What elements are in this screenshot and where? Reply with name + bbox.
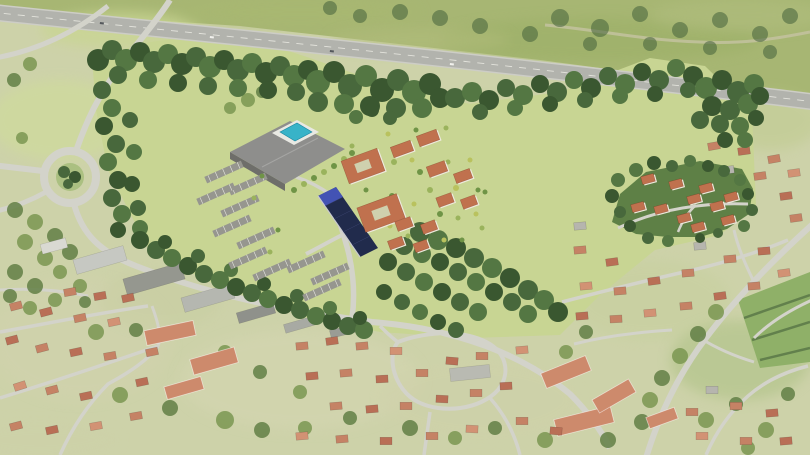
town-house — [606, 257, 619, 266]
render-tree — [482, 258, 502, 278]
bush — [427, 187, 433, 193]
town-house — [614, 287, 627, 296]
bush — [453, 185, 459, 191]
render-tree — [467, 273, 485, 291]
photo-tree — [7, 73, 21, 87]
photo-tree — [3, 289, 17, 303]
photo-tree — [600, 432, 616, 448]
town-house — [748, 282, 761, 291]
town-house — [780, 191, 793, 200]
photo-tree — [129, 323, 143, 337]
town-house — [724, 255, 737, 264]
bush — [468, 158, 473, 163]
photo-tree — [583, 37, 597, 51]
bush — [410, 158, 415, 163]
render-tree — [662, 235, 674, 247]
town-house — [356, 342, 369, 351]
town-house — [686, 408, 698, 416]
render-tree — [507, 100, 523, 116]
bush — [483, 190, 488, 195]
render-tree — [287, 83, 305, 101]
photo-tree — [432, 10, 448, 26]
town-house — [446, 357, 459, 366]
render-tree — [633, 63, 651, 81]
render-tree — [199, 77, 217, 95]
town-house — [296, 432, 309, 441]
render-tree — [565, 71, 583, 89]
render-tree — [746, 204, 758, 216]
render-tree — [737, 132, 753, 148]
town-house — [426, 432, 438, 440]
photo-tree — [112, 387, 128, 403]
bush — [456, 216, 461, 221]
town-house — [306, 372, 319, 381]
photo-tree — [522, 26, 538, 42]
render-tree — [95, 117, 113, 135]
render-tree — [497, 79, 515, 97]
render-tree — [548, 302, 568, 322]
render-tree — [485, 283, 503, 301]
photo-tree — [48, 293, 62, 307]
town-house — [296, 342, 309, 351]
render-tree — [379, 253, 397, 271]
render-tree — [629, 163, 643, 177]
render-tree — [605, 189, 619, 203]
bush — [321, 169, 327, 175]
render-tree — [738, 220, 750, 232]
photo-tree — [698, 412, 714, 428]
render-tree — [290, 289, 304, 303]
bush — [349, 150, 355, 156]
render-tree — [718, 165, 730, 177]
photo-tree — [402, 420, 418, 436]
render-tree — [624, 220, 636, 232]
town-house — [788, 168, 801, 177]
bush — [444, 126, 449, 131]
town-house — [516, 417, 528, 425]
town-house — [516, 346, 529, 355]
render-tree — [139, 71, 157, 89]
render-tree — [431, 253, 449, 271]
photo-tree — [293, 385, 307, 399]
photo-tree — [703, 41, 717, 55]
render-tree — [519, 305, 537, 323]
photo-tree — [17, 234, 33, 250]
render-tree — [158, 235, 172, 249]
bush — [301, 181, 307, 187]
town-house — [680, 302, 693, 311]
bush — [476, 188, 481, 193]
bush — [417, 169, 423, 175]
bush — [406, 234, 411, 239]
render-tree — [412, 304, 428, 320]
photo-tree — [672, 348, 688, 364]
bush — [252, 196, 257, 201]
photo-tree — [559, 345, 573, 359]
town-house — [550, 427, 563, 436]
photo-tree — [472, 18, 488, 34]
town-house — [730, 402, 742, 410]
photo-tree — [16, 132, 28, 144]
photo-tree — [53, 265, 67, 279]
render-tree — [323, 301, 337, 315]
photo-tree — [643, 37, 657, 51]
photo-tree — [88, 324, 104, 340]
render-tree — [445, 88, 465, 108]
town-house — [758, 247, 771, 256]
photo-tree — [7, 202, 23, 218]
town-house — [470, 389, 482, 397]
render-tree — [307, 307, 325, 325]
render-tree — [191, 249, 205, 263]
render-tree — [131, 231, 149, 249]
bush — [350, 144, 355, 149]
bush — [414, 128, 419, 133]
render-tree — [691, 111, 709, 129]
render-tree — [99, 153, 117, 171]
town-house — [706, 386, 718, 394]
photo-tree — [654, 370, 670, 386]
photo-tree — [253, 365, 267, 379]
render-tree — [449, 263, 467, 281]
render-tree — [464, 248, 484, 268]
render-tree — [308, 92, 328, 112]
town-house — [780, 437, 793, 446]
town-house — [466, 425, 478, 433]
render-tree — [713, 228, 723, 238]
render-tree — [376, 284, 392, 300]
town-house — [694, 242, 707, 251]
town-house — [500, 382, 512, 390]
photo-tree — [323, 1, 337, 15]
town-house — [340, 369, 353, 378]
render-tree — [577, 92, 593, 108]
render-tree — [113, 205, 131, 223]
render-tree — [349, 110, 363, 124]
photo-tree — [708, 304, 724, 320]
render-tree — [503, 293, 521, 311]
town-house — [330, 402, 343, 411]
render-tree — [531, 75, 549, 93]
bush — [260, 174, 265, 179]
photo-tree — [224, 102, 236, 114]
photo-tree — [712, 12, 728, 28]
render-tree — [109, 171, 127, 189]
render-tree — [109, 66, 127, 84]
render-tree — [430, 314, 446, 330]
viewport — [0, 0, 810, 455]
photo-tree — [392, 4, 408, 20]
town-house — [574, 246, 587, 255]
bush — [480, 226, 485, 231]
render-tree — [229, 79, 247, 97]
town-house — [576, 312, 589, 321]
bush — [460, 238, 465, 243]
photo-tree — [27, 214, 43, 230]
render-tree — [695, 233, 705, 243]
render-tree — [169, 74, 187, 92]
render-tree — [124, 176, 140, 192]
bush — [437, 211, 443, 217]
render-tree — [433, 283, 451, 301]
aerial-render-image — [0, 0, 810, 455]
town-house — [696, 432, 708, 440]
photo-tree — [551, 9, 569, 27]
town-house — [380, 437, 392, 445]
render-tree — [448, 322, 464, 338]
town-house — [766, 409, 779, 418]
bush — [276, 228, 281, 233]
town-house — [574, 222, 587, 231]
town-house — [644, 309, 657, 318]
town-house — [376, 375, 388, 383]
roundabout-tree — [58, 166, 70, 178]
render-tree — [614, 206, 626, 218]
town-house — [336, 435, 349, 444]
render-tree — [742, 188, 754, 200]
town-house — [714, 291, 727, 300]
render-tree — [383, 111, 397, 125]
render-tree — [462, 82, 482, 102]
render-tree — [195, 265, 213, 283]
render-tree — [451, 293, 469, 311]
roundabout-tree — [63, 179, 73, 189]
photo-tree — [763, 45, 777, 59]
photo-tree — [216, 411, 234, 429]
bush — [331, 163, 337, 169]
photo-tree — [488, 421, 502, 435]
town-house — [754, 171, 767, 180]
render-tree — [122, 112, 138, 128]
render-tree — [500, 268, 520, 288]
render-tree — [259, 290, 277, 308]
photo-tree — [353, 9, 367, 23]
render-tree — [472, 104, 488, 120]
town-house — [390, 347, 402, 355]
town-house — [436, 395, 448, 403]
town-house — [476, 352, 488, 360]
town-house — [416, 369, 428, 377]
photo-tree — [690, 326, 706, 342]
bush — [268, 250, 273, 255]
town-house — [682, 269, 695, 278]
town-house — [610, 315, 622, 323]
render-tree — [717, 132, 733, 148]
render-tree — [751, 87, 769, 105]
photo-tree — [579, 325, 593, 339]
photo-tree — [632, 6, 648, 22]
photo-tree — [23, 301, 37, 315]
render-tree — [365, 103, 379, 117]
photo-tree — [79, 296, 91, 308]
render-tree — [611, 173, 625, 187]
bush — [291, 187, 297, 193]
render-tree — [647, 86, 663, 102]
render-tree — [93, 81, 111, 99]
render-tree — [667, 59, 685, 77]
render-tree — [415, 273, 433, 291]
render-tree — [259, 81, 277, 99]
bush — [391, 159, 397, 165]
render-tree — [612, 88, 628, 104]
town-house — [778, 268, 791, 277]
photo-tree — [343, 411, 357, 425]
photo-tree — [672, 22, 688, 38]
town-house — [400, 402, 412, 410]
town-house — [366, 405, 379, 414]
render-tree — [748, 110, 764, 126]
town-house — [580, 282, 593, 291]
render-tree — [599, 67, 617, 85]
photo-tree — [758, 422, 774, 438]
photo-tree — [23, 57, 37, 71]
bush — [474, 212, 479, 217]
render-tree — [647, 156, 661, 170]
render-tree — [103, 99, 121, 117]
render-tree — [130, 200, 146, 216]
render-tree — [734, 174, 746, 186]
render-tree — [163, 249, 181, 267]
photo-tree — [782, 8, 798, 24]
bush — [386, 132, 391, 137]
render-tree — [107, 135, 125, 153]
town-house — [648, 276, 661, 285]
render-tree — [642, 232, 654, 244]
render-tree — [542, 96, 558, 112]
render-tree — [103, 189, 121, 207]
render-tree — [666, 160, 678, 172]
render-tree — [469, 303, 487, 321]
bush — [442, 238, 447, 243]
render-tree — [702, 160, 714, 172]
bush — [311, 175, 317, 181]
photo-tree — [642, 392, 658, 408]
render-tree — [334, 94, 354, 114]
render-tree — [684, 155, 696, 167]
render-tree — [711, 115, 729, 133]
render-tree — [291, 301, 309, 319]
render-tree — [227, 278, 245, 296]
photo-tree — [448, 431, 462, 445]
photo-tree — [27, 278, 43, 294]
photo-tree — [752, 26, 768, 42]
render-tree — [275, 296, 293, 314]
render-tree — [353, 311, 367, 325]
town-house — [790, 213, 803, 222]
render-tree — [110, 222, 126, 238]
town-house — [740, 437, 752, 445]
photo-tree — [781, 387, 795, 401]
render-tree — [126, 144, 142, 160]
bush — [364, 188, 369, 193]
town-house — [326, 336, 339, 345]
render-tree — [394, 294, 410, 310]
photo-tree — [162, 400, 178, 416]
photo-tree — [254, 422, 270, 438]
photo-tree — [591, 19, 609, 37]
render-tree — [397, 263, 415, 281]
render-tree — [680, 82, 696, 98]
render-tree — [412, 98, 432, 118]
photo-tree — [7, 264, 23, 280]
bush — [412, 202, 417, 207]
